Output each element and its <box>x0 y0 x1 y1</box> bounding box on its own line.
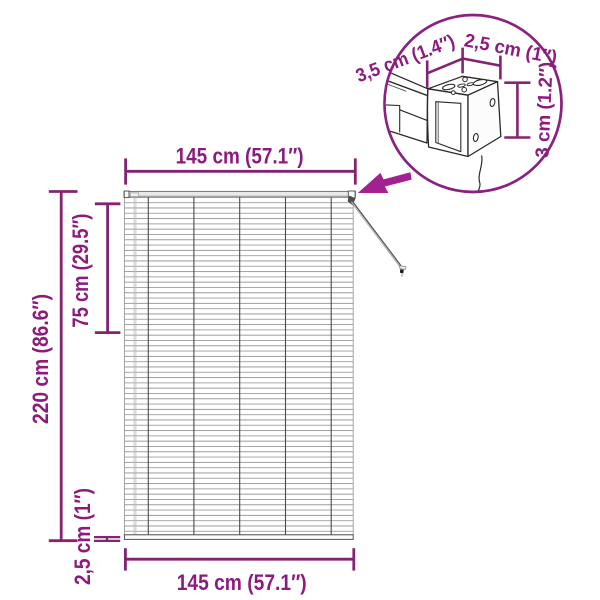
svg-text:220 cm (86.6″): 220 cm (86.6″) <box>28 294 53 424</box>
svg-text:145 cm (57.1″): 145 cm (57.1″) <box>177 570 307 595</box>
svg-text:2,5 cm (1″): 2,5 cm (1″) <box>70 488 95 585</box>
svg-text:145 cm (57.1″): 145 cm (57.1″) <box>176 144 304 169</box>
svg-text:75 cm (29.5″): 75 cm (29.5″) <box>68 214 93 328</box>
svg-text:3 cm (1.2″): 3 cm (1.2″) <box>532 61 557 158</box>
